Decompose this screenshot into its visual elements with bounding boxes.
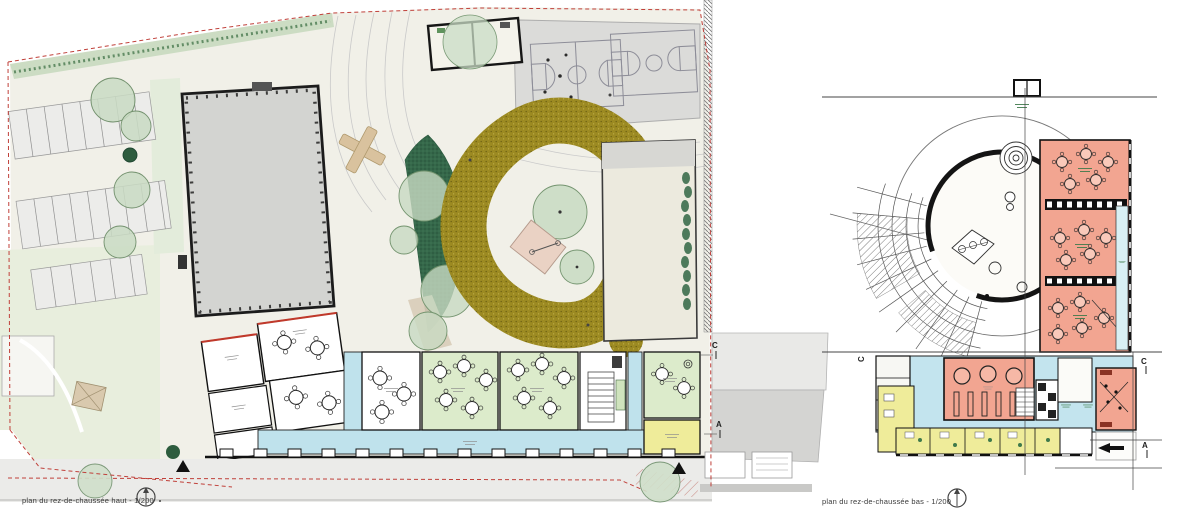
street-tree bbox=[640, 462, 680, 502]
right-plan-caption: plan du rez-de-chaussée bas - 1/200 bbox=[822, 497, 951, 506]
site-plan-canvas: C A plan du rez-de-chaussée haut - 1/200 bbox=[0, 0, 1200, 521]
adjacent-buildings bbox=[700, 0, 828, 492]
step-hatch bbox=[857, 213, 920, 298]
section-letter: C bbox=[857, 356, 866, 362]
section-letter: A bbox=[1142, 441, 1148, 450]
lower-ground-floor-plan: C C A plan du rez-de-chaussée bas - 1/20… bbox=[822, 80, 1162, 507]
section-letter: C bbox=[1141, 357, 1147, 366]
gallery-corridor bbox=[1116, 206, 1128, 350]
lift-core bbox=[1036, 380, 1058, 420]
activity-rooms-column bbox=[1040, 140, 1130, 352]
step-hatch bbox=[899, 290, 977, 356]
gym-building bbox=[178, 82, 334, 316]
spiral-stair bbox=[1000, 142, 1032, 174]
service-band bbox=[876, 356, 1136, 460]
entry-room-salmon bbox=[1096, 368, 1136, 430]
left-plan-caption: plan du rez-de-chaussée haut - 1/200 bbox=[22, 496, 154, 505]
section-letter: C bbox=[712, 341, 718, 350]
upper-ground-floor-plan: C A plan du rez-de-chaussée haut - 1/200 bbox=[0, 0, 828, 506]
architectural-drawing: C A plan du rez-de-chaussée haut - 1/200 bbox=[0, 0, 1200, 521]
stair-block bbox=[580, 352, 626, 430]
canopy-court bbox=[602, 140, 697, 341]
section-letter: A bbox=[716, 420, 722, 429]
right-plan-title-block: plan du rez-de-chaussée bas - 1/200 bbox=[822, 488, 966, 507]
street-tree bbox=[78, 464, 112, 498]
pavilion-tree bbox=[443, 15, 497, 69]
